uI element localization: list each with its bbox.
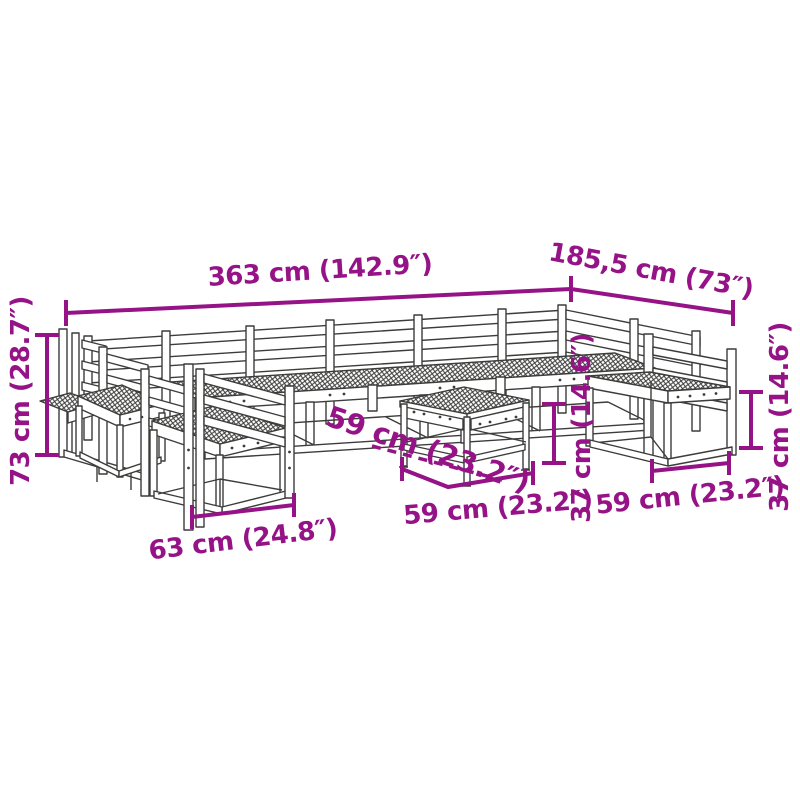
dim-line-right-seat-height (739, 392, 763, 448)
dim-line-overall-height (35, 335, 59, 455)
dim-label-right-seat-height: 37 cm (14.6″) (765, 322, 795, 512)
line-art-canvas (0, 0, 800, 800)
dimension-diagram: 363 cm (142.9″) 185,5 cm (73″) 73 cm (28… (0, 0, 800, 800)
dim-label-overall-height: 73 cm (28.7″) (6, 296, 36, 486)
